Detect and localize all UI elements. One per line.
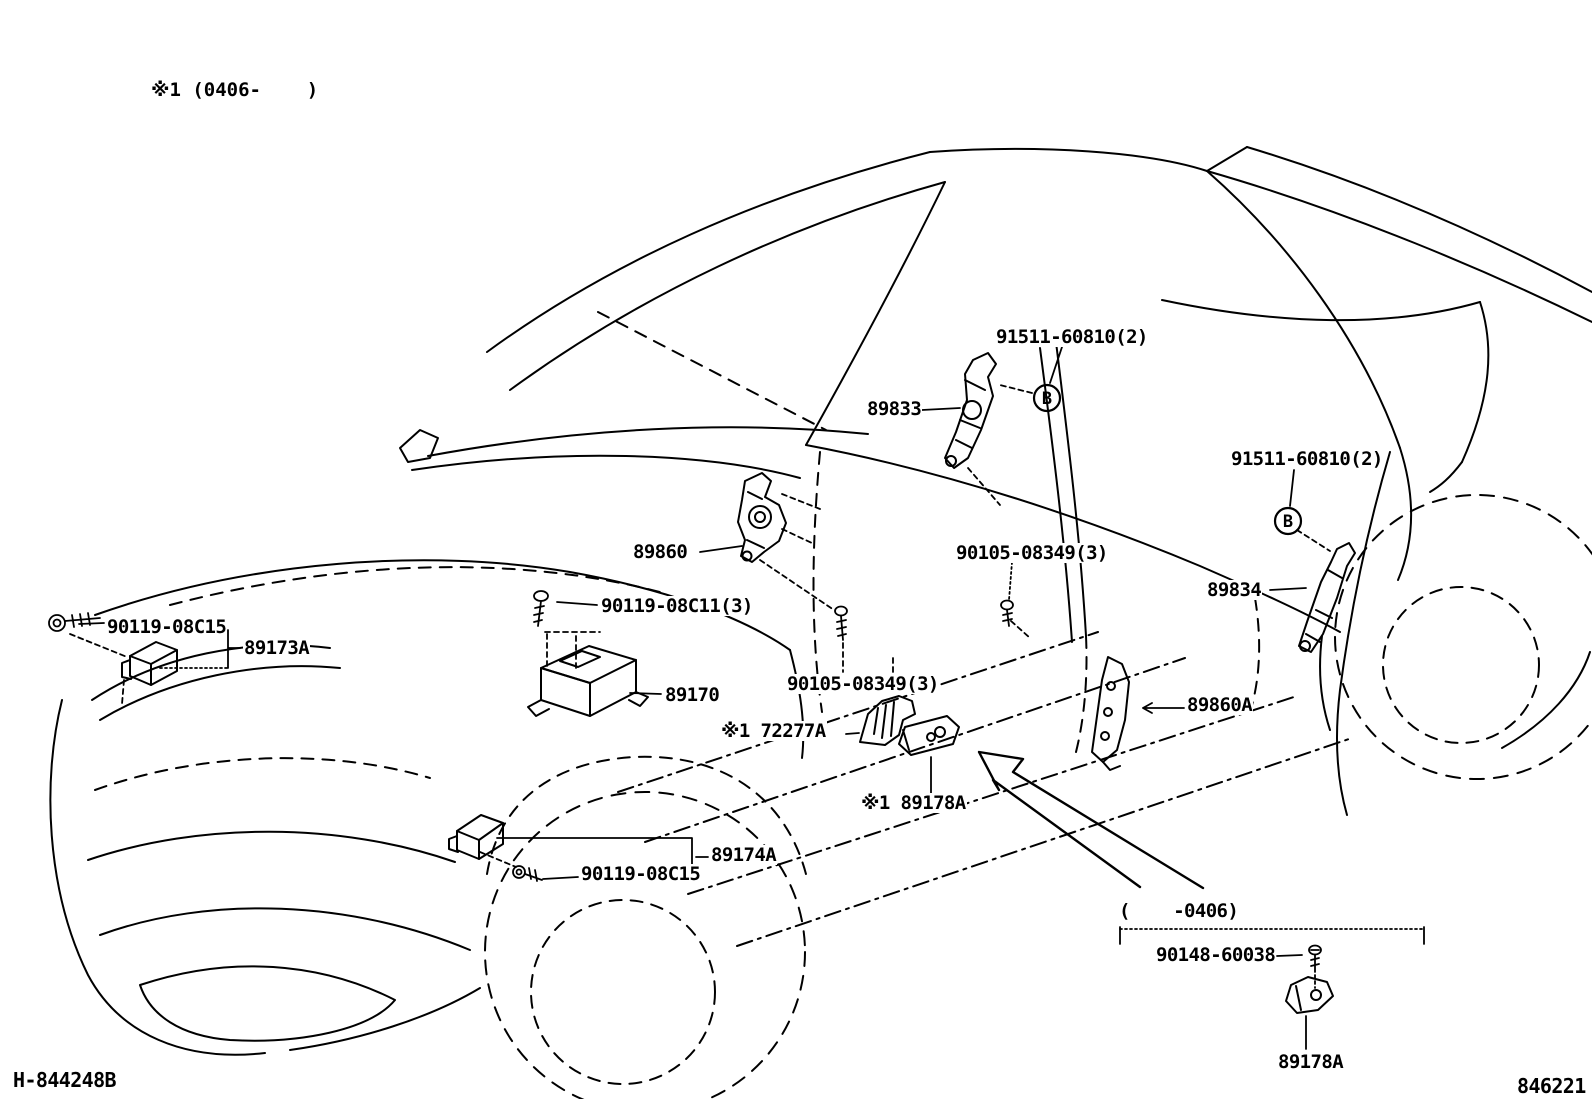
part-label-90119-08c11: 90119-08C11(3) xyxy=(600,596,754,616)
part-label-90119-08c15-front: 90119-08C15 xyxy=(106,617,227,637)
part-72277a-clip xyxy=(860,696,915,745)
part-89174a-sensor xyxy=(449,815,503,859)
note-production-range: ※1 (0406- ) xyxy=(150,80,319,100)
part-label-89860a: 89860A xyxy=(1186,695,1253,715)
part-label-89178a-side: ※1 89178A xyxy=(860,793,967,813)
part-label-90119-08c15-lower: 90119-08C15 xyxy=(580,864,701,884)
rear-wheel xyxy=(1335,495,1592,779)
pillar-marker-b-2: B xyxy=(1275,508,1301,534)
doc-number: H-844248B xyxy=(12,1070,117,1090)
part-label-89178a-front: 89178A xyxy=(1277,1052,1344,1072)
part-label-89860: 89860 xyxy=(632,542,688,562)
pillar-marker-b-2-letter: B xyxy=(1283,512,1293,532)
dashed-construction-lines xyxy=(70,385,1330,867)
part-label-90105-08349-lower: 90105-08349(3) xyxy=(786,674,940,694)
part-label-89834: 89834 xyxy=(1206,580,1262,600)
part-label-89833: 89833 xyxy=(866,399,922,419)
page-number: 846221 xyxy=(1516,1076,1587,1096)
part-label-91511-60810-right: 91511-60810(2) xyxy=(1230,449,1384,469)
part-89834-sensor xyxy=(1299,543,1355,652)
part-label-90105-08349-upper: 90105-08349(3) xyxy=(955,543,1109,563)
part-89860-sensor xyxy=(738,473,786,562)
pillar-marker-b-1: B xyxy=(1034,385,1060,411)
part-label-89174a: 89174A xyxy=(710,845,777,865)
parts-diagram: B B ※1 (0406- ) 91511-60810(2) 89833 915… xyxy=(0,0,1592,1099)
part-89833-sensor xyxy=(945,353,996,468)
car-line-art: B B xyxy=(0,0,1592,1099)
part-label-89170: 89170 xyxy=(664,685,720,705)
part-label-72277a: ※1 72277A xyxy=(720,721,827,741)
pointer-arrow xyxy=(979,752,1203,888)
part-label-91511-60810-top: 91511-60810(2) xyxy=(995,327,1149,347)
part-label-90148-60038: 90148-60038 xyxy=(1155,945,1276,965)
range-note-0406: ( -0406) xyxy=(1118,901,1239,921)
part-89170-ecu xyxy=(528,646,648,716)
part-89178a-front-sensor xyxy=(1286,977,1333,1013)
part-label-89173a: 89173A xyxy=(243,638,310,658)
part-89178a-side-sensor xyxy=(899,716,959,755)
pillar-marker-b-1-letter: B xyxy=(1042,389,1052,409)
rocker-centerlines xyxy=(618,632,1352,946)
